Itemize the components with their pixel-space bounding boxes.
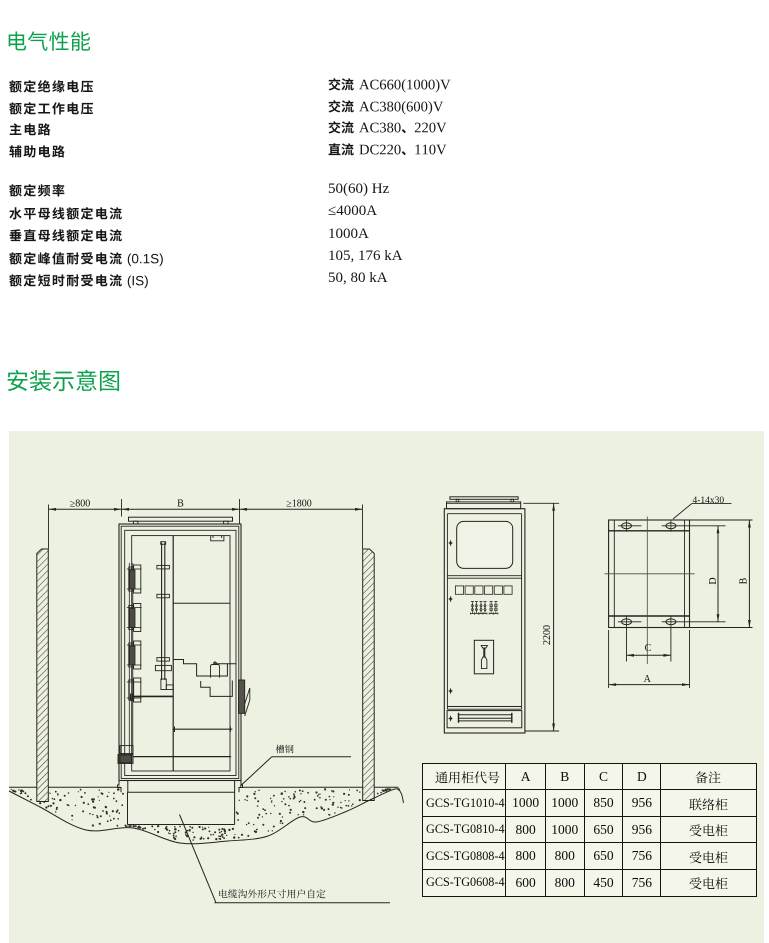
svg-text:D: D (708, 577, 719, 584)
svg-text:B: B (177, 498, 184, 509)
svg-text:2200: 2200 (542, 625, 553, 645)
svg-text:≥1800: ≥1800 (286, 498, 312, 509)
svg-text:≥800: ≥800 (70, 498, 91, 509)
svg-text:4-14x30: 4-14x30 (693, 496, 725, 506)
svg-text:A: A (644, 674, 652, 685)
svg-text:B: B (739, 577, 750, 584)
svg-text:C: C (645, 643, 652, 654)
